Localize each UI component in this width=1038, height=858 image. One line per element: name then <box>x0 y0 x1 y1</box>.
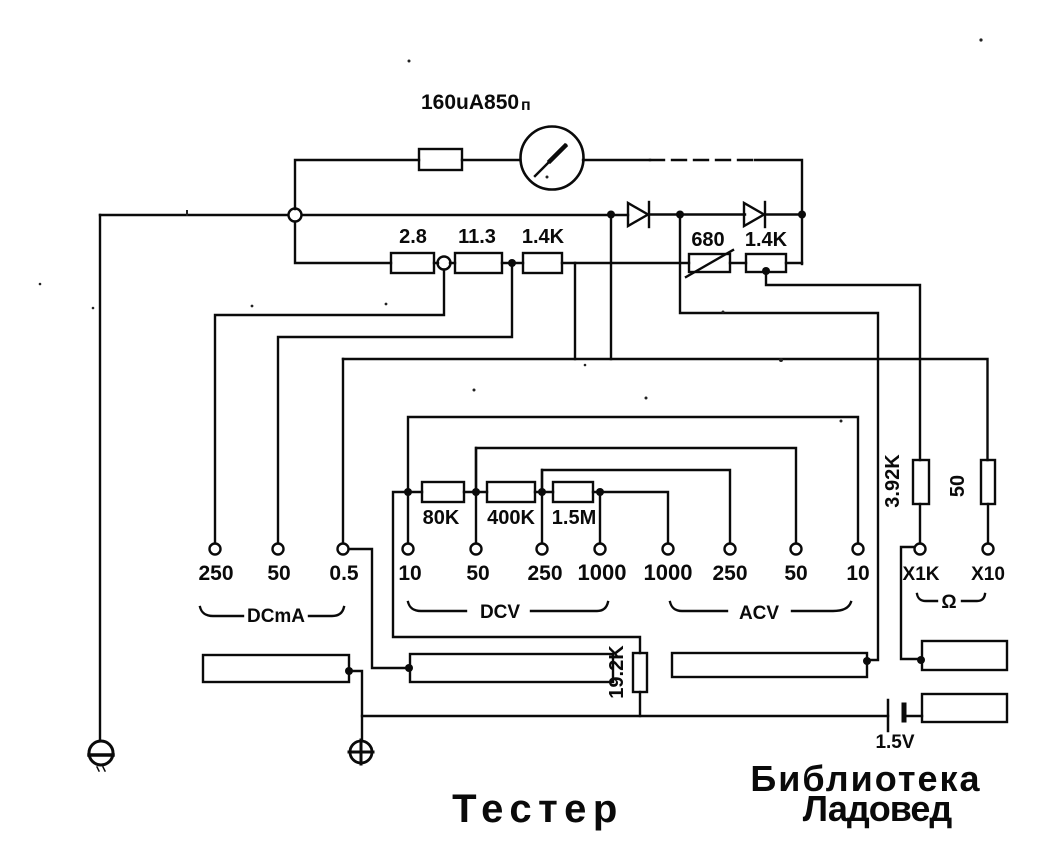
svg-text:50: 50 <box>466 562 489 585</box>
svg-text:160uA850: 160uA850 <box>421 91 519 114</box>
svg-text:11.3: 11.3 <box>458 226 496 248</box>
svg-text:0.5: 0.5 <box>329 562 359 585</box>
svg-text:п: п <box>521 97 531 114</box>
svg-text:X1K: X1K <box>903 564 940 585</box>
svg-text:50: 50 <box>267 562 290 585</box>
svg-text:1.4K: 1.4K <box>522 226 565 248</box>
svg-text:1.4K: 1.4K <box>745 229 788 251</box>
svg-text:ACV: ACV <box>739 603 779 624</box>
svg-text:X10: X10 <box>971 564 1005 585</box>
svg-text:680: 680 <box>691 229 724 251</box>
svg-text:250: 250 <box>198 562 233 585</box>
svg-text:50: 50 <box>784 562 807 585</box>
svg-text:2.8: 2.8 <box>399 226 427 248</box>
svg-text:1.5V: 1.5V <box>875 732 914 753</box>
svg-text:250: 250 <box>712 562 747 585</box>
svg-text:Тестер: Тестер <box>452 787 624 831</box>
svg-text:10: 10 <box>398 562 421 585</box>
svg-text:19.2K: 19.2K <box>606 645 628 699</box>
svg-text:3.92K: 3.92K <box>882 454 904 508</box>
svg-text:10: 10 <box>846 562 869 585</box>
svg-text:1000: 1000 <box>644 560 693 585</box>
svg-text:250: 250 <box>527 562 562 585</box>
svg-text:Ладовед: Ладовед <box>803 788 953 829</box>
svg-text:80K: 80K <box>423 507 460 529</box>
svg-text:400K: 400K <box>487 507 535 529</box>
svg-text:DCmA: DCmA <box>247 606 305 627</box>
svg-text:Ω: Ω <box>941 592 956 613</box>
svg-text:DCV: DCV <box>480 602 520 623</box>
svg-text:1000: 1000 <box>578 560 627 585</box>
svg-text:50: 50 <box>947 475 969 497</box>
svg-text:1.5M: 1.5M <box>552 507 596 529</box>
